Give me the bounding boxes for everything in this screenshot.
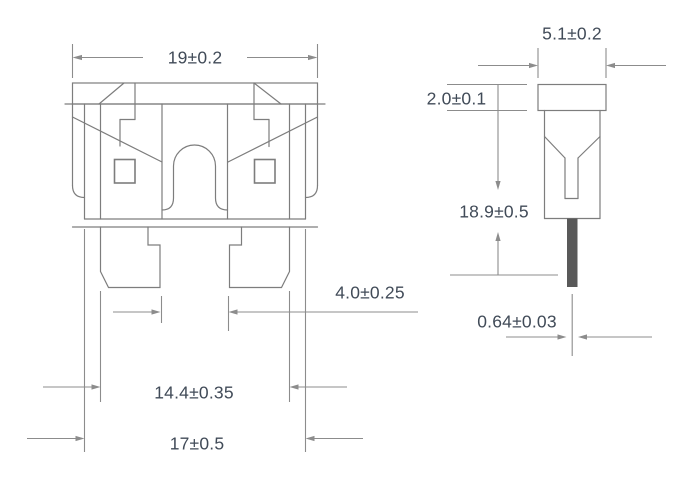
dim-thickness-label: 5.1±0.2: [542, 24, 602, 44]
drawing-svg: 19±0.2 4.0±0.25 14.4±0.35 17±0.5 5.1±0.2…: [0, 0, 690, 485]
dim-overall-height-label: 18.9±0.5: [459, 202, 529, 222]
front-left-window: [115, 160, 136, 184]
fuse-technical-drawing: 19±0.2 4.0±0.25 14.4±0.35 17±0.5 5.1±0.2…: [0, 0, 690, 485]
front-cap: [73, 83, 318, 104]
side-funnel-right: [578, 137, 600, 159]
front-right-window: [255, 160, 276, 184]
dim-base-width-label: 17±0.5: [170, 434, 225, 454]
front-view: [65, 83, 325, 288]
dim-terminal-span-label: 14.4±0.35: [154, 383, 234, 403]
dim-overall-width-label: 19±0.2: [168, 48, 223, 68]
front-right-diagonal: [228, 117, 318, 162]
dim-cap-height-label: 2.0±0.1: [427, 89, 487, 109]
side-blade-terminal: [567, 219, 578, 288]
front-cap-left-chamfer: [99, 83, 124, 104]
front-left-diagonal: [73, 117, 163, 162]
side-funnel-left: [545, 137, 566, 159]
dim-blade-thickness-label: 0.64±0.03: [477, 312, 557, 332]
dim-blade-gap-label: 4.0±0.25: [335, 283, 405, 303]
side-cap: [538, 85, 606, 111]
side-view: [538, 85, 606, 219]
front-cap-right-chamfer: [254, 83, 281, 104]
front-left-ear-round: [73, 186, 85, 198]
front-right-terminal: [230, 227, 290, 288]
front-left-terminal: [101, 227, 161, 288]
dimension-labels: 19±0.2 4.0±0.25 14.4±0.35 17±0.5 5.1±0.2…: [154, 24, 602, 454]
front-element-arch: [162, 145, 228, 210]
front-right-ear-round: [306, 186, 318, 198]
